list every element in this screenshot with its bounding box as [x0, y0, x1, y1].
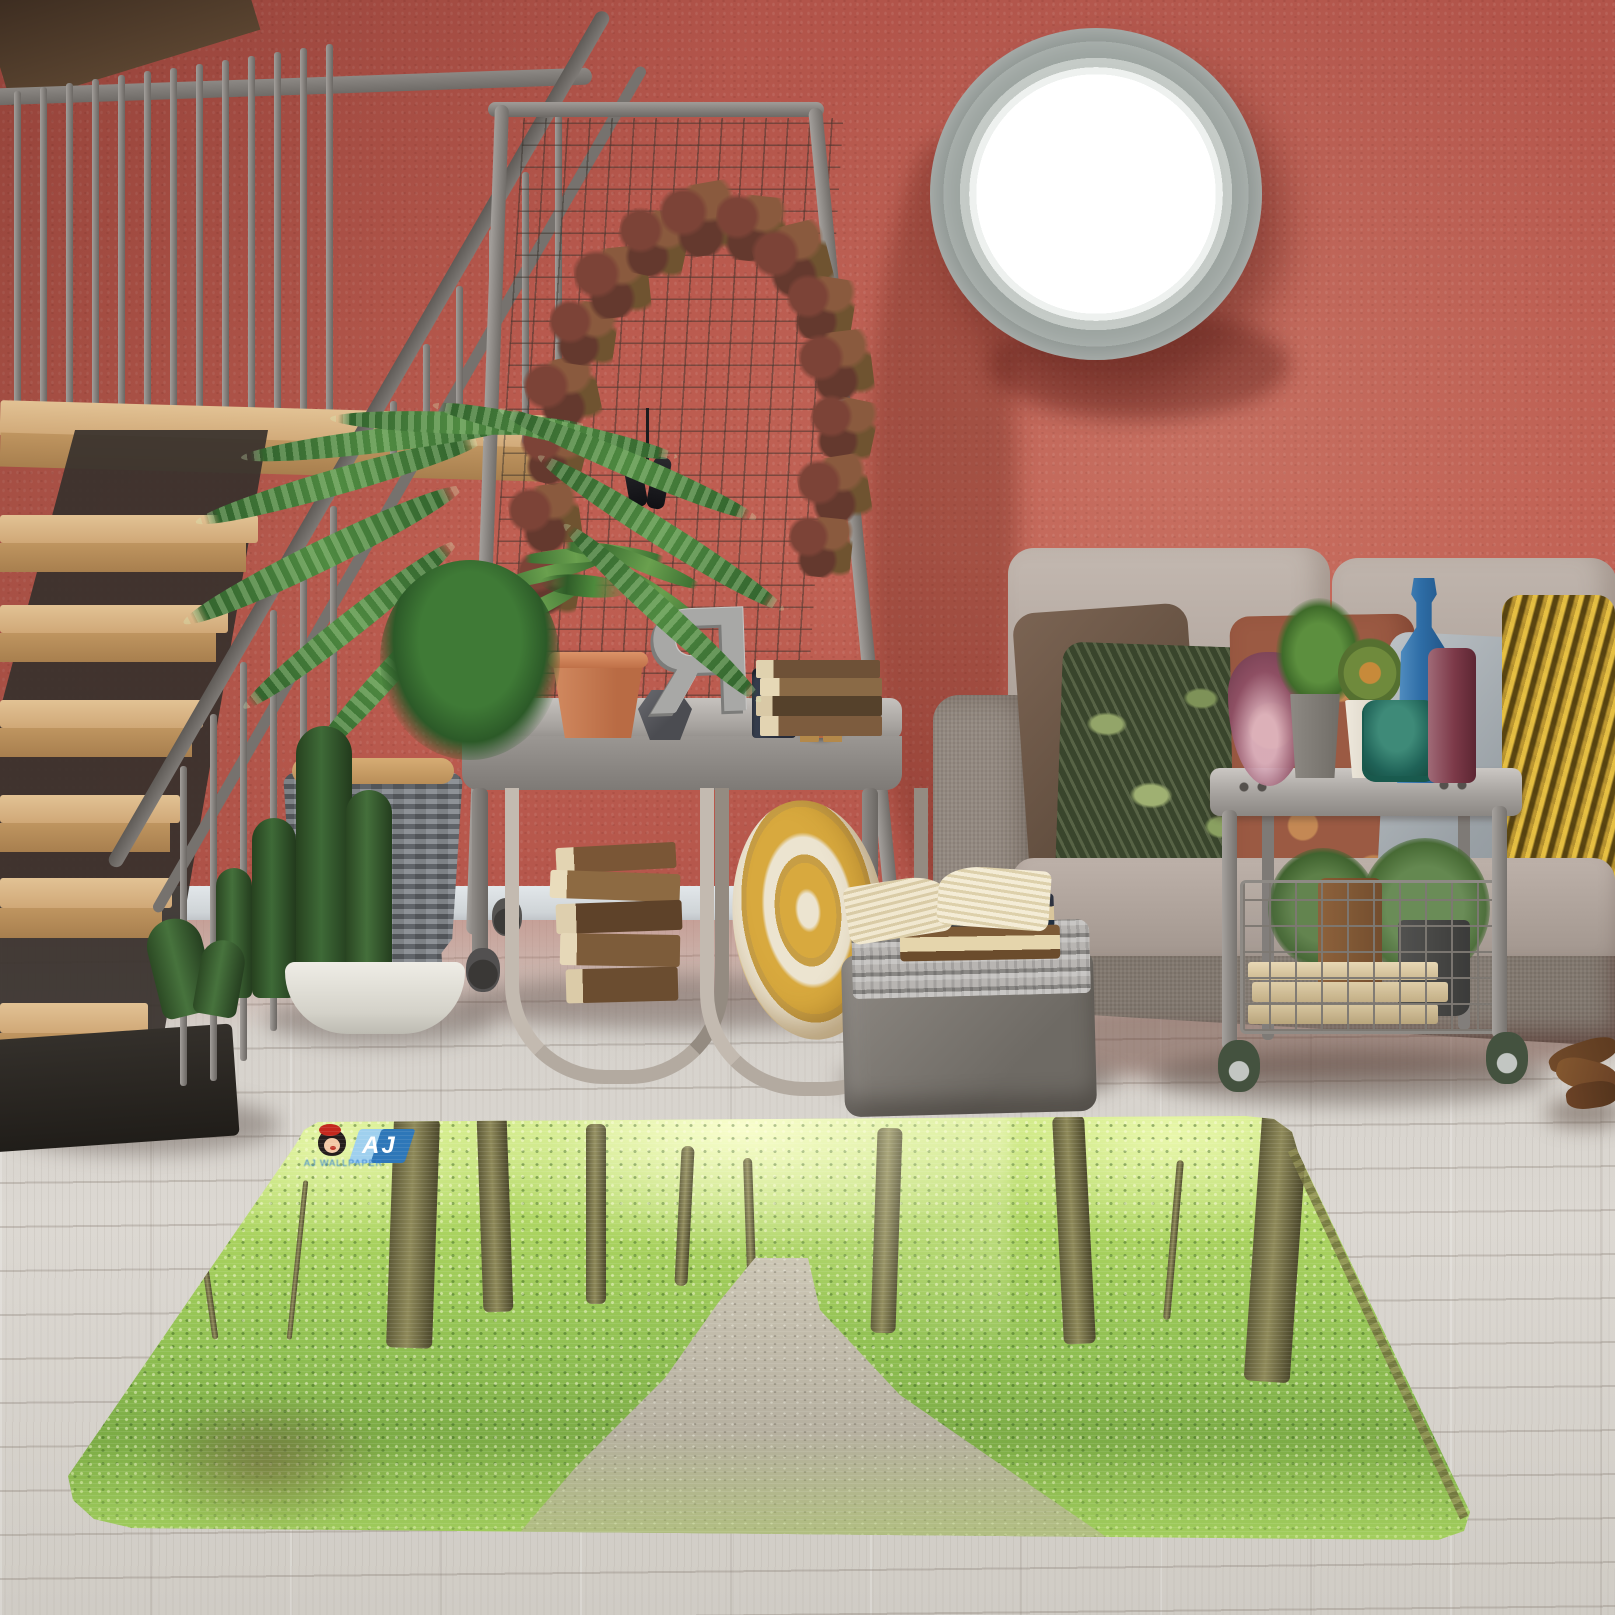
- succulent: [1338, 638, 1402, 708]
- sling-book: [550, 870, 681, 903]
- console-leg-left: [472, 788, 488, 960]
- railing-bar: [14, 91, 21, 432]
- stair-tread-face: [0, 543, 246, 572]
- console-caster-left: [466, 948, 500, 992]
- railing-bar: [248, 56, 255, 451]
- stair-tread-face: [0, 633, 216, 662]
- cart-front-leg: [1222, 810, 1237, 1050]
- leaf-garland: [803, 391, 880, 465]
- railing-bar: [66, 83, 73, 436]
- shelf-book: [756, 660, 880, 678]
- railing-bar: [274, 52, 281, 453]
- leaf-garland: [796, 328, 876, 404]
- railing-bar: [40, 87, 47, 434]
- terracotta-pot-rim: [548, 652, 648, 668]
- stair-tread: [0, 1003, 148, 1033]
- railing-bar: [196, 64, 203, 447]
- railing-bar: [240, 662, 247, 1061]
- porthole-mirror: [930, 28, 1262, 360]
- teal-lidded-jar: [1362, 700, 1438, 782]
- stair-base-block: [0, 1023, 240, 1152]
- sling-book: [560, 933, 681, 967]
- sling-book: [566, 967, 679, 1004]
- stair-tread-face: [0, 823, 170, 852]
- leaf-garland: [785, 514, 855, 580]
- cart-wheel: [1486, 1032, 1528, 1084]
- open-book-right-pages: [936, 864, 1052, 932]
- stair-tread: [0, 700, 203, 728]
- cactus-column: [296, 726, 352, 996]
- mini-plant-pot: [1288, 694, 1342, 778]
- shelf-book: [760, 678, 882, 696]
- railing-bar: [118, 75, 125, 440]
- rack-top-tube: [488, 102, 824, 117]
- cart-front-leg: [1492, 806, 1507, 1038]
- stair-tread-face: [0, 728, 192, 757]
- shelf-book: [756, 696, 882, 716]
- stair-tread-face: [0, 908, 162, 938]
- terracotta-pot: [552, 658, 644, 738]
- stair-tread: [0, 878, 172, 908]
- railing-bar: [326, 44, 333, 457]
- railing-bar: [222, 60, 229, 449]
- living-room-product-photo: R: [0, 0, 1615, 1615]
- railing-bar: [170, 68, 177, 445]
- sling-book: [556, 900, 683, 934]
- plum-small-jar: [1428, 648, 1476, 783]
- palm-center: [380, 560, 560, 760]
- cart-wheel: [1218, 1040, 1260, 1092]
- shelf-book: [760, 716, 882, 736]
- railing-bar: [300, 48, 307, 455]
- railing-bar: [144, 71, 151, 442]
- cart-wire-basket: [1240, 880, 1502, 1034]
- railing-bar: [92, 79, 99, 438]
